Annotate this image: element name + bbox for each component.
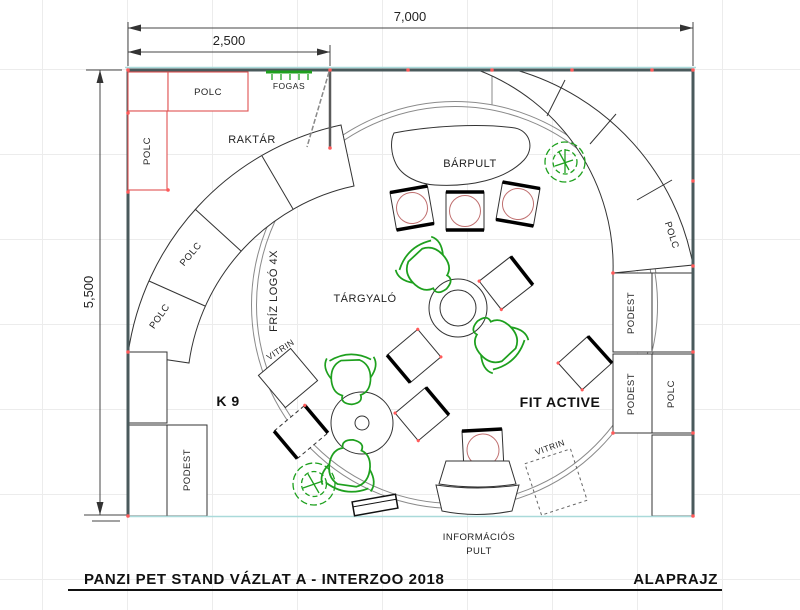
dimension-total-height: 5,500 [81, 70, 130, 521]
podest-box-right-1: PODEST [613, 273, 693, 352]
sheet-name: ALAPRAJZ [633, 571, 718, 588]
shelf-band-right: POLC [478, 70, 693, 273]
chair [386, 327, 443, 384]
floor-plan-canvas: 7,000 2,500 5,500 POLC POLC POLC [0, 0, 800, 610]
dim-7000-text: 7,000 [394, 9, 427, 24]
label-fit-active: FIT ACTIVE [520, 394, 601, 410]
chair [556, 335, 613, 392]
label-barpult: BÁRPULT [443, 157, 496, 170]
label-targyalo: TÁRGYALÓ [333, 292, 396, 305]
floor-plan-sheet: 7,000 2,500 5,500 POLC POLC POLC [0, 0, 800, 610]
dim-5500-text: 5,500 [81, 276, 96, 309]
bar-stool-3 [496, 182, 540, 226]
label-vitrin-right: VITRIN [534, 437, 566, 457]
label-info-line2: PULT [466, 546, 492, 557]
wall-segment-left [128, 352, 167, 423]
podest-box-right-2: PODEST POLC [613, 354, 693, 433]
bench [352, 494, 398, 515]
coat-hanger: FOGAS [266, 71, 312, 92]
shelf-corner-box [128, 72, 168, 111]
label-info-line1: INFORMÁCIÓS [443, 532, 516, 543]
label-friz-logo: FRÍZ LOGÓ 4X [267, 250, 280, 332]
dimension-partial-width: 2,500 [128, 33, 330, 66]
label-polc-right-box: POLC [666, 380, 677, 408]
info-desk [436, 429, 519, 515]
bar-stool-2 [446, 192, 484, 230]
label-podest-right1: PODEST [626, 292, 637, 334]
label-raktar: RAKTÁR [228, 133, 276, 146]
chair [393, 386, 450, 443]
hanger-rail [266, 71, 312, 74]
storage-shelves: POLC POLC [128, 72, 248, 190]
podest-box-left: PODEST [128, 425, 207, 516]
bar-counter: BÁRPULT [392, 126, 530, 186]
label-fogas: FOGAS [273, 81, 305, 91]
box-right-bottom [652, 435, 693, 516]
label-polc-top: POLC [194, 87, 222, 98]
label-k9: K 9 [216, 393, 239, 409]
meeting-table-1 [429, 279, 487, 337]
bar-stool-1 [390, 186, 434, 230]
drawing-title: PANZI PET STAND VÁZLAT A - INTERZOO 2018 [84, 571, 444, 588]
label-podest-right2: PODEST [626, 373, 637, 415]
title-block: PANZI PET STAND VÁZLAT A - INTERZOO 2018… [68, 571, 722, 590]
dim-2500-text: 2,500 [213, 33, 246, 48]
label-polc-left: POLC [142, 137, 153, 165]
label-podest-left: PODEST [182, 449, 193, 491]
